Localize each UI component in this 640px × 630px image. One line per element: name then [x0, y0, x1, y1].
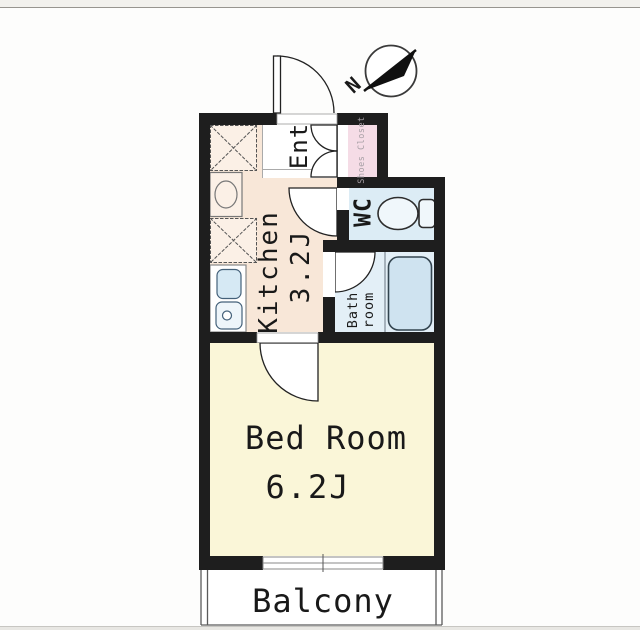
- bathroom-label-line1: Bath: [345, 292, 361, 329]
- washing-machine-symbol: [210, 173, 242, 217]
- entrance-door: [274, 56, 335, 113]
- kitchen-size-label: 3.2J: [288, 229, 314, 304]
- shoes-closet-label: Shoes Closet: [358, 116, 367, 183]
- bath-fixtures: [385, 252, 432, 332]
- wall-right-upper: [377, 113, 388, 183]
- burner-icon: [223, 311, 232, 320]
- bedroom-size-label: 6.2J: [265, 471, 350, 503]
- wall-bedroom-bottom-left: [199, 556, 263, 570]
- bathroom-label: Bathroom: [345, 292, 377, 329]
- balcony-label: Balcony: [252, 585, 394, 617]
- storage-space-symbol: [211, 219, 257, 263]
- wc-fixtures: [378, 198, 435, 230]
- floorplan-svg: [0, 0, 640, 630]
- wc-door-gap: [337, 188, 349, 210]
- kitchen-label: Kitchen: [256, 210, 282, 334]
- sink-symbol: [217, 270, 241, 299]
- wall-bedroom-top-left: [199, 332, 257, 343]
- wall-right-outer: [434, 177, 445, 570]
- toilet-bowl-symbol: [378, 198, 418, 230]
- entrance-label: Ent: [287, 123, 311, 169]
- toilet-tank-symbol: [419, 200, 435, 228]
- bathtub-symbol: [389, 257, 432, 330]
- kitchen-counter: [210, 265, 246, 332]
- wall-bedroom-top-right: [318, 332, 445, 343]
- wall-top-left: [199, 113, 277, 125]
- wall-bedroom-bottom-right: [383, 556, 445, 570]
- bath-door-gap: [323, 252, 335, 297]
- bottom-gray-band: [0, 626, 640, 630]
- wall-wc-bath: [323, 240, 445, 252]
- fridge-space-symbol: [211, 126, 257, 171]
- floorplan-image: Kitchen 3.2J Ent Shoes Closet WC Bathroo…: [0, 0, 640, 630]
- compass: [364, 46, 417, 97]
- bathroom-label-line2: room: [361, 292, 377, 329]
- closet-door-strip: [337, 125, 348, 177]
- balcony-window: [263, 554, 383, 572]
- wall-wc-top: [337, 177, 445, 188]
- bedroom-label: Bed Room: [245, 422, 407, 454]
- bedroom-threshold: [257, 333, 318, 343]
- wc-label: WC: [353, 197, 376, 227]
